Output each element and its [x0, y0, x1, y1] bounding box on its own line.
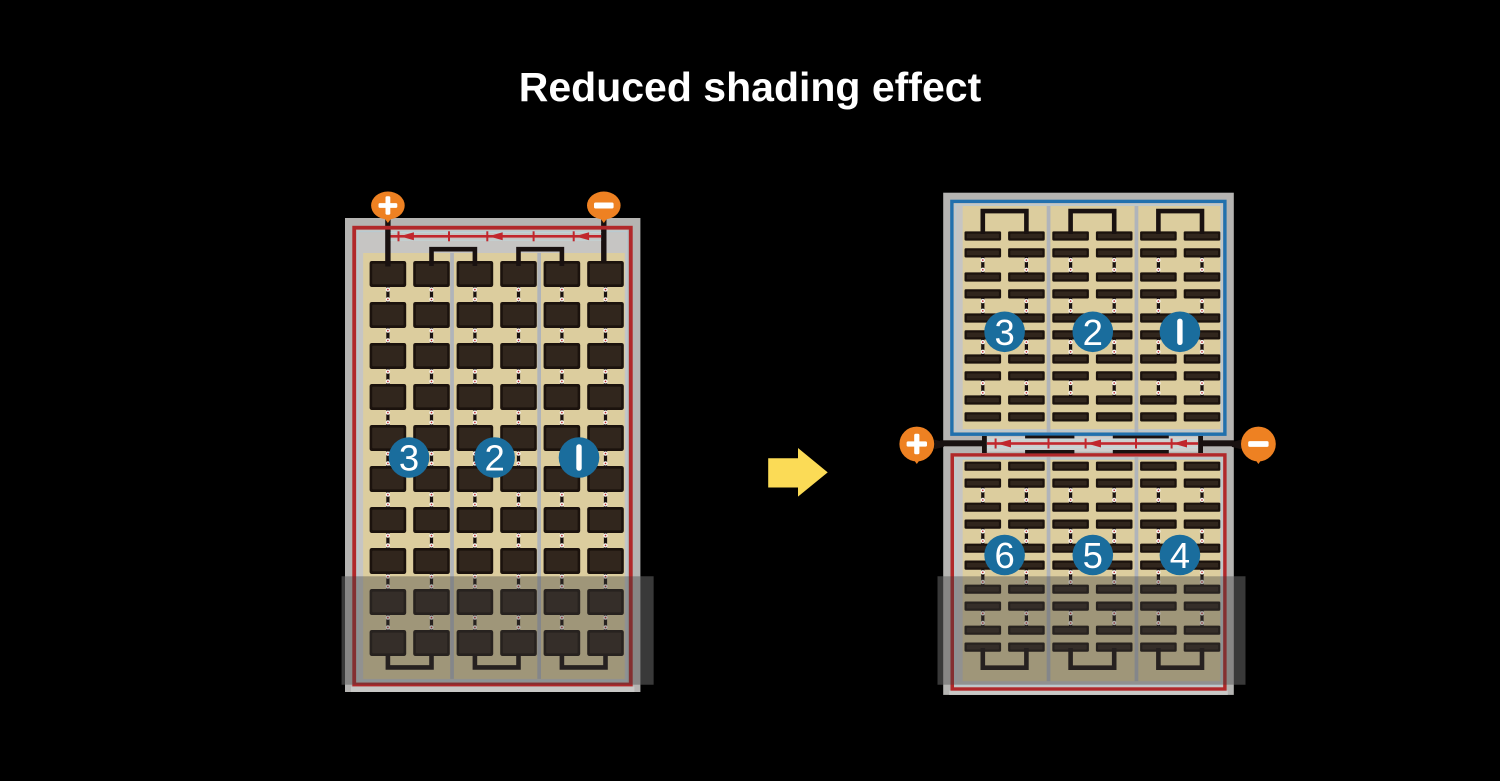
svg-text:3: 3: [994, 312, 1014, 353]
svg-text:2: 2: [1083, 312, 1103, 353]
svg-text:6: 6: [994, 535, 1014, 576]
svg-text:4: 4: [1170, 535, 1190, 576]
svg-text:Reduced shading effect: Reduced shading effect: [519, 64, 982, 110]
svg-text:3: 3: [399, 438, 419, 479]
svg-text:2: 2: [484, 438, 504, 479]
svg-text:5: 5: [1083, 535, 1103, 576]
